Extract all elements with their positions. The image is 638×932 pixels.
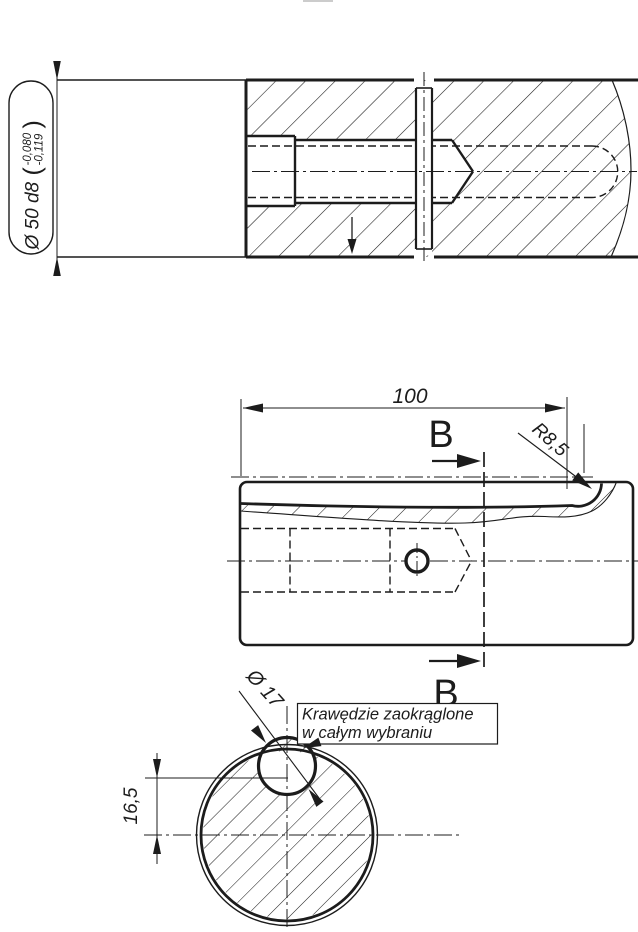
- note-text-line2: w całym wybraniu: [302, 724, 432, 742]
- dia50-arrow-bottom: [53, 257, 61, 276]
- dia50-value: Ø 50 d8: [23, 181, 44, 250]
- dim165-arrow-top: [153, 759, 161, 778]
- section-letter-top: B: [428, 414, 453, 456]
- section-arrow-bottom: [457, 654, 481, 668]
- cropped-artifact: [303, 0, 333, 2]
- section-arrow-top: [457, 454, 481, 468]
- dia50-arrow-top: [53, 61, 61, 80]
- tolerance-lower: -0,119: [34, 133, 46, 165]
- dia17-label-text: Ø 17: [241, 665, 288, 713]
- dia50-balloon-text: Ø 50 d8 ( -0,080 -0,119 ): [19, 120, 47, 250]
- dim100-text: 100: [392, 385, 427, 408]
- tolerance-paren-open: (: [19, 167, 47, 176]
- tolerance-paren-close: ): [19, 120, 47, 128]
- dim100-arrow-right: [545, 404, 565, 413]
- view-longitudinal-section: [9, 61, 638, 276]
- drawing-canvas: Ø 50 d8 ( -0,080 -0,119 ): [0, 0, 638, 932]
- radius-label-text: R8,5: [528, 419, 572, 462]
- dim165-text: 16,5: [121, 787, 142, 824]
- dim165-arrow-bottom: [153, 835, 161, 854]
- note-text-line1: Krawędzie zaokrąglone: [302, 706, 474, 724]
- dim100-arrow-left: [243, 404, 263, 413]
- engineering-drawing-page: Ø 50 d8 ( -0,080 -0,119 ): [0, 0, 638, 932]
- tolerance-upper: -0,080: [22, 132, 34, 165]
